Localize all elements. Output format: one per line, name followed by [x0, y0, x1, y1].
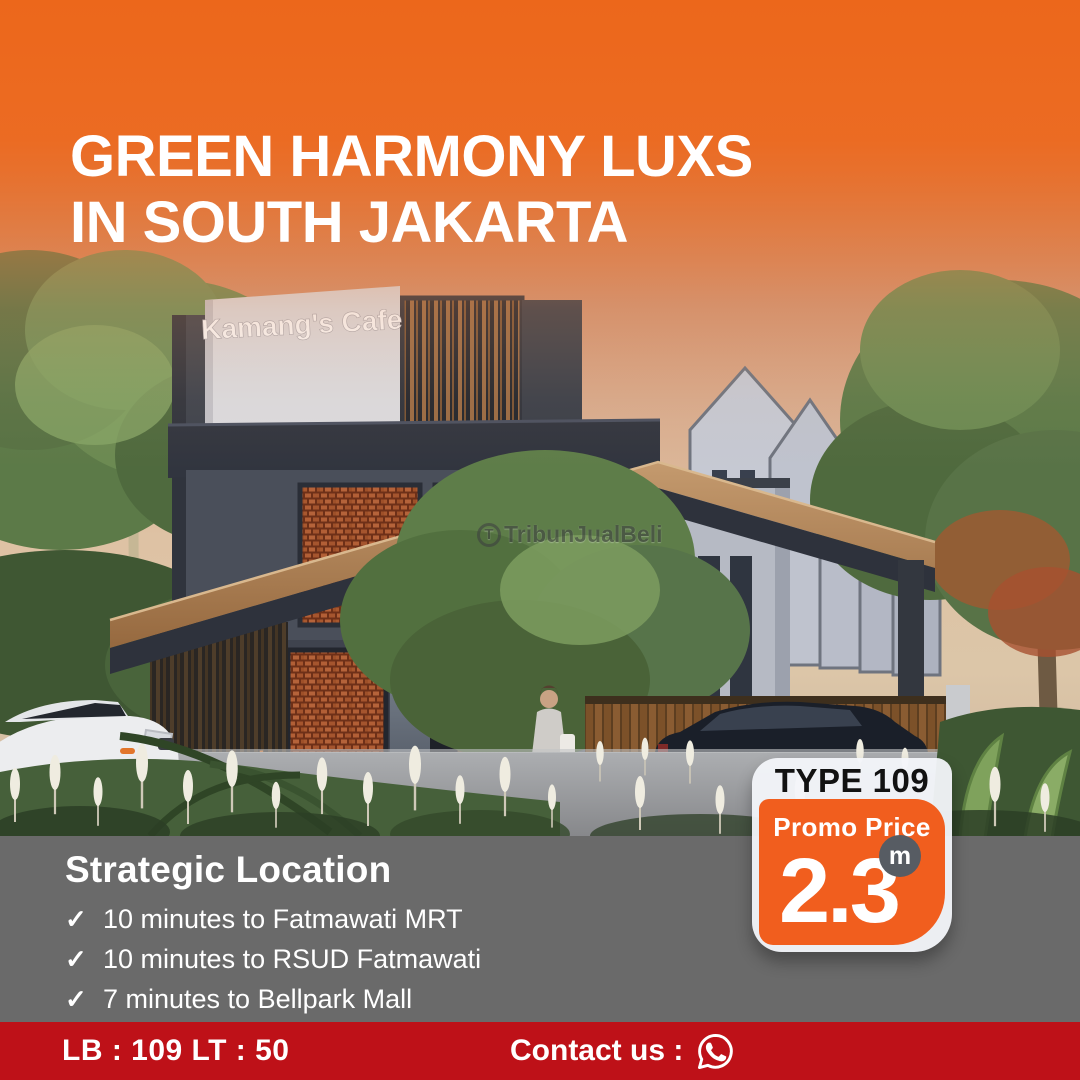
- location-item-text: 10 minutes to Fatmawati MRT: [103, 904, 463, 935]
- property-poster: Kamang's Cafe Kamang's: [0, 0, 1080, 1080]
- whatsapp-icon[interactable]: [695, 1031, 736, 1072]
- price-badge: TYPE 109 Promo Price 2.3 m: [752, 758, 952, 952]
- title-line-1: GREEN HARMONY LUXS: [70, 124, 753, 190]
- watermark-logo-icon: T: [477, 523, 501, 547]
- contact-group[interactable]: Contact us :: [510, 1031, 736, 1072]
- footer-bar: LB : 109 LT : 50 Contact us :: [0, 1022, 1080, 1080]
- check-icon: ✓: [65, 904, 103, 935]
- title-line-2: IN SOUTH JAKARTA: [70, 190, 753, 256]
- type-label: TYPE 109: [752, 758, 952, 800]
- check-icon: ✓: [65, 944, 103, 975]
- price-unit-badge: m: [879, 835, 921, 877]
- area-size-text: LB : 109 LT : 50: [62, 1034, 290, 1068]
- check-icon: ✓: [65, 984, 103, 1015]
- page-title: GREEN HARMONY LUXS IN SOUTH JAKARTA: [70, 124, 753, 255]
- contact-label: Contact us :: [510, 1034, 683, 1068]
- location-item-text: 10 minutes to RSUD Fatmawati: [103, 944, 481, 975]
- promo-label: Promo Price: [759, 812, 945, 843]
- location-item-text: 7 minutes to Bellpark Mall: [103, 984, 412, 1015]
- promo-price-box: Promo Price 2.3 m: [759, 799, 945, 945]
- watermark: T TribunJualBeli: [477, 521, 662, 548]
- watermark-text: TribunJualBeli: [504, 521, 662, 548]
- location-item: ✓ 7 minutes to Bellpark Mall: [65, 984, 1080, 1015]
